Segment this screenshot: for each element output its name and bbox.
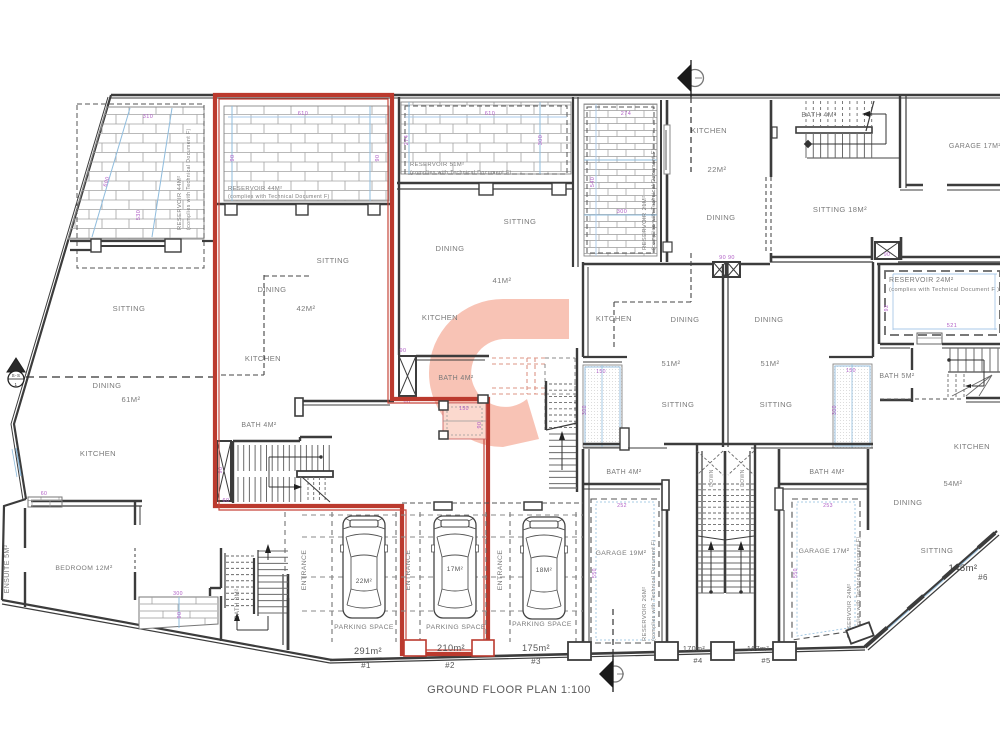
svg-text:550: 550 xyxy=(793,568,799,578)
svg-text:KITCHEN: KITCHEN xyxy=(954,442,990,451)
svg-text:BATH 4M²: BATH 4M² xyxy=(809,469,845,476)
svg-text:253: 253 xyxy=(823,503,833,509)
svg-text:252: 252 xyxy=(617,503,627,509)
svg-text:610: 610 xyxy=(298,111,308,117)
svg-text:GARAGE 17M²: GARAGE 17M² xyxy=(799,548,850,555)
svg-text:DOWN: DOWN xyxy=(740,469,746,486)
svg-text:550: 550 xyxy=(592,568,598,578)
svg-text:#6: #6 xyxy=(978,573,988,582)
svg-text:GARAGE 19M²: GARAGE 19M² xyxy=(596,550,647,557)
svg-text:274: 274 xyxy=(621,111,631,117)
svg-text:DINING: DINING xyxy=(436,244,465,253)
svg-text:274: 274 xyxy=(404,135,410,145)
svg-text:ENSUITE 5M²: ENSUITE 5M² xyxy=(4,544,11,593)
svg-text:60: 60 xyxy=(223,498,230,504)
svg-text:RESERVOIR 51M²: RESERVOIR 51M² xyxy=(410,162,464,168)
svg-text:22M²: 22M² xyxy=(356,578,373,585)
svg-text:PARKING SPACE: PARKING SPACE xyxy=(512,621,572,628)
svg-text:BEDROOM 12M²: BEDROOM 12M² xyxy=(55,565,113,572)
svg-text:BATH 4M²: BATH 4M² xyxy=(438,375,474,382)
svg-text:300: 300 xyxy=(582,405,588,415)
svg-text:51M²: 51M² xyxy=(761,359,780,368)
svg-text:DINING: DINING xyxy=(93,381,122,390)
svg-text:DINING: DINING xyxy=(894,498,923,507)
svg-text:DINING: DINING xyxy=(755,315,784,324)
svg-text:SITTING: SITTING xyxy=(504,217,537,226)
svg-text:PARKING SPACE: PARKING SPACE xyxy=(334,624,394,631)
svg-text:PARKING SPACE: PARKING SPACE xyxy=(426,624,486,631)
svg-text:150: 150 xyxy=(596,369,606,375)
svg-text:SITTING 18M²: SITTING 18M² xyxy=(813,205,867,214)
svg-text:90: 90 xyxy=(884,252,890,258)
svg-text:150: 150 xyxy=(846,368,856,374)
svg-text:291m²: 291m² xyxy=(354,646,382,656)
svg-text:150: 150 xyxy=(459,406,469,412)
svg-text:210m²: 210m² xyxy=(437,643,465,653)
svg-text:1: 1 xyxy=(15,382,18,387)
svg-text:SITTING: SITTING xyxy=(662,400,695,409)
svg-text:18M²: 18M² xyxy=(536,567,553,574)
svg-text:530: 530 xyxy=(136,210,142,220)
svg-text:521: 521 xyxy=(947,323,957,329)
svg-text:BATH 5M²: BATH 5M² xyxy=(879,373,915,380)
svg-text:DINING: DINING xyxy=(258,285,287,294)
svg-text:#2: #2 xyxy=(445,661,455,670)
svg-text:SITTING: SITTING xyxy=(317,256,350,265)
svg-text:175m²: 175m² xyxy=(522,643,550,653)
svg-text:(complies with Technical Docum: (complies with Technical Document F) xyxy=(410,170,512,176)
svg-text:SITTING: SITTING xyxy=(113,304,146,313)
svg-text:BATH 4M²: BATH 4M² xyxy=(241,422,277,429)
svg-text:KITCHEN: KITCHEN xyxy=(596,314,632,323)
svg-text:RESERVOIR 44M²: RESERVOIR 44M² xyxy=(228,186,282,192)
svg-text:RESERVOIR 44M²: RESERVOIR 44M² xyxy=(177,176,183,230)
svg-text:90: 90 xyxy=(477,422,483,429)
svg-text:DINING: DINING xyxy=(707,213,736,222)
svg-text:310: 310 xyxy=(143,114,153,120)
svg-text:ENTRANCE: ENTRANCE xyxy=(405,550,412,591)
svg-text:S-S: S-S xyxy=(12,373,21,378)
svg-text:RESERVOIR 21M²: RESERVOIR 21M² xyxy=(642,196,648,250)
svg-text:54M²: 54M² xyxy=(944,479,963,488)
svg-text:KITCHEN: KITCHEN xyxy=(245,354,281,363)
svg-text:300: 300 xyxy=(538,135,544,145)
svg-text:(complies with Technical Docum: (complies with Technical Document F) xyxy=(651,148,657,250)
svg-text:300: 300 xyxy=(832,405,838,415)
svg-text:RESERVOIR 24M²: RESERVOIR 24M² xyxy=(889,277,954,284)
svg-text:ENTRANCE: ENTRANCE xyxy=(497,550,504,591)
svg-text:#1: #1 xyxy=(361,661,371,670)
svg-text:ENTRANCE: ENTRANCE xyxy=(301,550,308,591)
svg-text:GROUND FLOOR PLAN 1:100: GROUND FLOOR PLAN 1:100 xyxy=(427,684,591,696)
svg-text:KITCHEN: KITCHEN xyxy=(422,313,458,322)
svg-text:610: 610 xyxy=(485,111,495,117)
svg-text:90: 90 xyxy=(400,348,407,354)
svg-text:300: 300 xyxy=(617,209,627,215)
svg-text:BATH 4M²: BATH 4M² xyxy=(606,469,642,476)
svg-text:167m²: 167m² xyxy=(747,644,770,653)
svg-text:22M²: 22M² xyxy=(708,165,727,174)
svg-text:540: 540 xyxy=(590,177,596,187)
svg-text:(complies with Technical Docum: (complies with Technical Document F) xyxy=(856,536,862,638)
svg-text:(complies with Technical Docum: (complies with Technical Document F ) xyxy=(889,287,999,293)
svg-text:(complies with Technical Docum: (complies with Technical Document F) xyxy=(651,539,657,641)
svg-text:42M²: 42M² xyxy=(297,304,316,313)
svg-text:92: 92 xyxy=(884,305,890,312)
svg-text:90: 90 xyxy=(375,155,381,162)
svg-text:#4: #4 xyxy=(693,656,702,665)
svg-text:BATH 3M²: BATH 3M² xyxy=(235,589,241,620)
svg-text:170m²: 170m² xyxy=(683,644,706,653)
svg-text:51M²: 51M² xyxy=(662,359,681,368)
svg-text:GARAGE 17M²: GARAGE 17M² xyxy=(949,143,1000,150)
svg-text:90: 90 xyxy=(230,155,236,162)
svg-text:(complies with Technical Docum: (complies with Technical Document F) xyxy=(186,128,192,230)
svg-text:61M²: 61M² xyxy=(122,395,141,404)
svg-text:90: 90 xyxy=(177,612,183,619)
svg-text:RESERVOIR 26M²: RESERVOIR 26M² xyxy=(642,587,648,641)
svg-text:17M²: 17M² xyxy=(447,566,464,573)
svg-text:(complies with Technical Docum: (complies with Technical Document F) xyxy=(228,194,330,200)
svg-text:#3: #3 xyxy=(531,657,541,666)
svg-text:SITTING: SITTING xyxy=(921,546,954,555)
svg-text:DINING: DINING xyxy=(671,315,700,324)
svg-text:300: 300 xyxy=(173,591,183,597)
svg-text:41M²: 41M² xyxy=(493,276,512,285)
svg-text:90 90: 90 90 xyxy=(719,255,735,261)
svg-text:KITCHEN: KITCHEN xyxy=(80,449,116,458)
svg-text:60: 60 xyxy=(41,491,48,497)
svg-text:BATH 4M²: BATH 4M² xyxy=(801,112,837,119)
svg-text:SITTING: SITTING xyxy=(760,400,793,409)
svg-text:DOWN: DOWN xyxy=(709,469,715,486)
svg-text:KITCHEN: KITCHEN xyxy=(691,126,727,135)
svg-text:#5: #5 xyxy=(761,656,770,665)
